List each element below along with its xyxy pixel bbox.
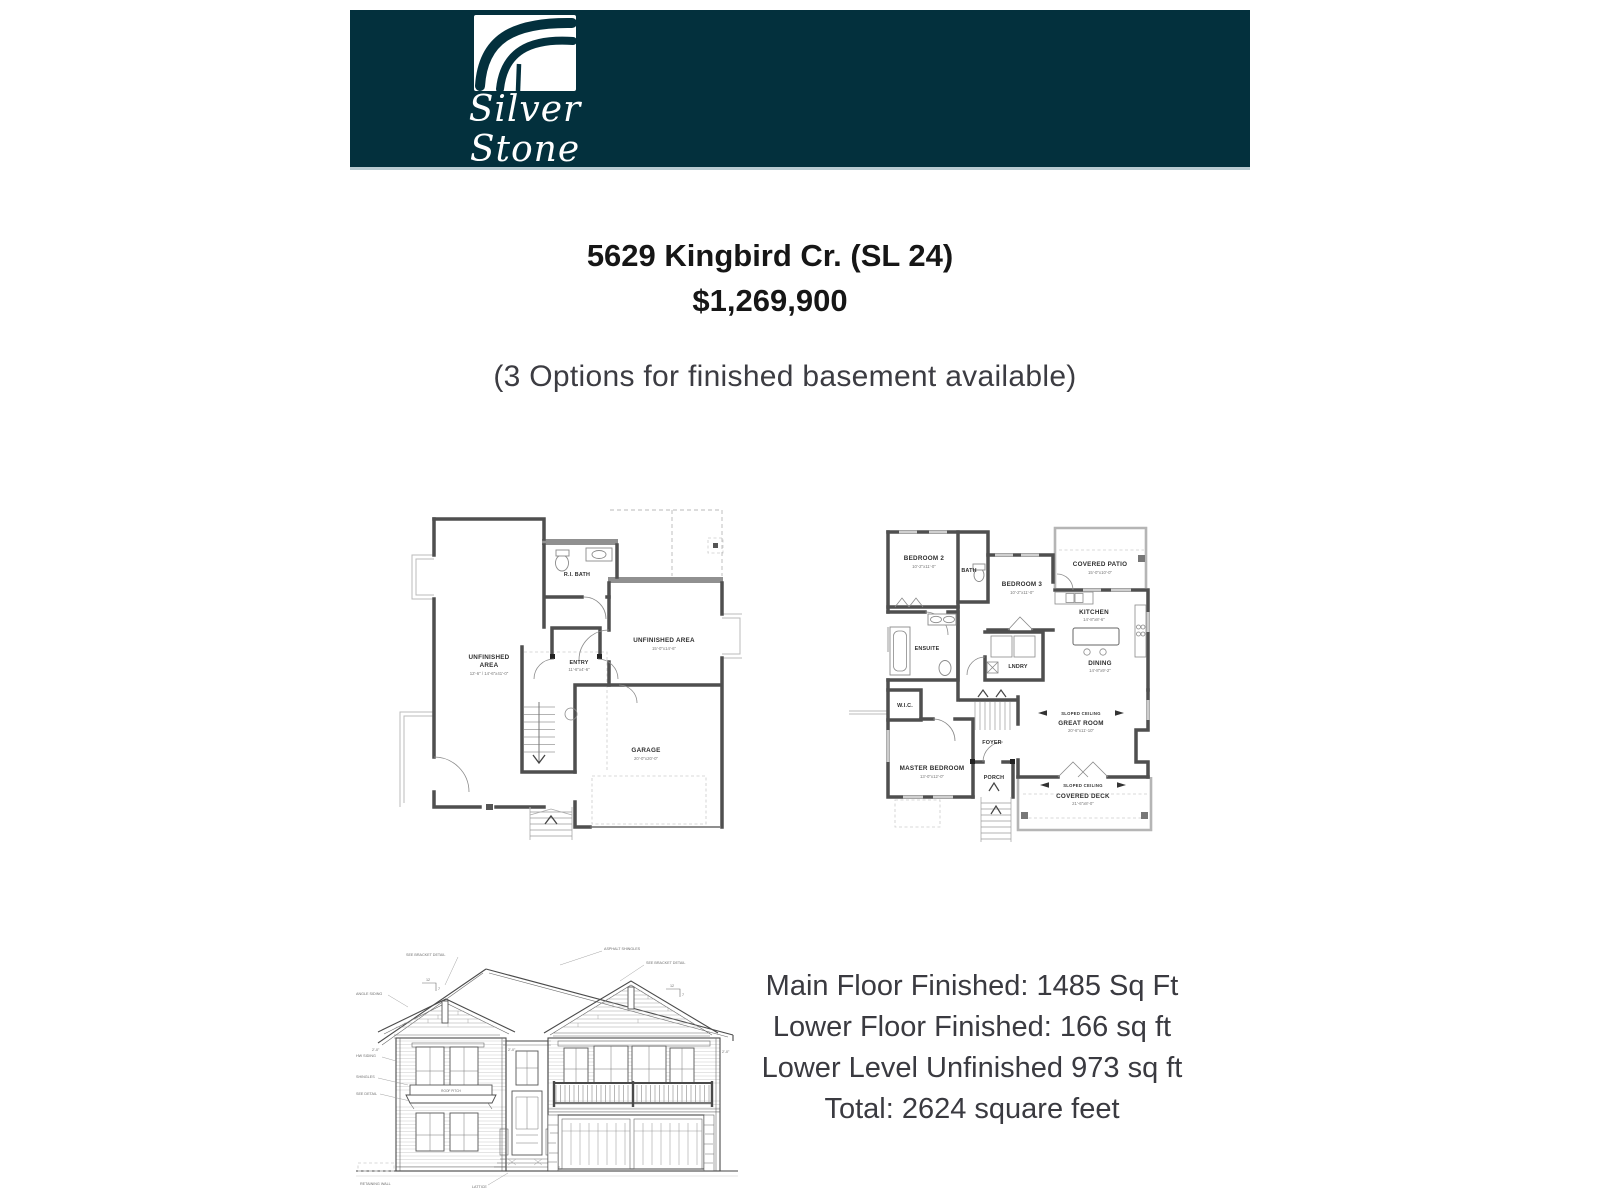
annotation-asphalt-shingles: ASPHALT SHINGLES <box>604 947 641 951</box>
room-dim-great-room: 20'-6"x11'-10" <box>1068 728 1095 733</box>
annotation-see-bracket-left: SEE BRACKET DETAIL <box>406 953 445 957</box>
annotation-overhang-right: 2'-0" <box>722 1050 730 1054</box>
room-label-covered-deck: COVERED DECK <box>1056 793 1110 800</box>
lower-floor-plan: UNFINISHED AREA 12'-6" / 14'-6"x41'-0" R… <box>372 462 742 840</box>
pitch-rise-right: 7 <box>682 993 684 997</box>
room-label-bedroom2: BEDROOM 2 <box>904 555 945 562</box>
square-footage-summary: Main Floor Finished: 1485 Sq Ft Lower Fl… <box>742 966 1202 1130</box>
room-dim-covered-patio: 15'-0"x10'-0" <box>1088 570 1113 575</box>
pitch-run-left: 12 <box>426 978 430 982</box>
listing-title-block: 5629 Kingbird Cr. (SL 24) $1,269,900 <box>270 234 1270 324</box>
annotation-shingles: SHINGLES <box>356 1075 375 1079</box>
basement-options-note: (3 Options for finished basement availab… <box>285 360 1285 394</box>
listing-price: $1,269,900 <box>270 278 1270 324</box>
room-label-porch: PORCH <box>984 775 1004 781</box>
pitch-run-right: 12 <box>670 984 674 988</box>
room-label-dining: DINING <box>1088 660 1112 667</box>
room-label-ensuite: ENSUITE <box>915 646 940 652</box>
pitch-rise-left: 7 <box>438 987 440 991</box>
room-label-wic: W.I.C. <box>897 703 913 709</box>
label-sloped-ceiling-great-room: SLOPED CEILING <box>1061 711 1101 716</box>
room-label-bath: BATH <box>961 568 976 574</box>
stone-arch-logo-icon <box>473 14 577 92</box>
summary-total: Total: 2624 square feet <box>742 1089 1202 1130</box>
room-label-unfinished-area-1: UNFINISHED <box>469 654 510 661</box>
room-dim-kitchen: 14'-8"x8'-6" <box>1083 617 1105 622</box>
room-dim-bedroom2: 10'-2"x11'-0" <box>912 564 936 569</box>
room-label-bedroom3: BEDROOM 3 <box>1002 581 1043 588</box>
room-dim-bedroom3: 10'-2"x11'-0" <box>1010 590 1034 595</box>
room-label-unfinished-right: UNFINISHED AREA <box>633 637 695 644</box>
room-dim-unfinished-area: 12'-6" / 14'-6"x41'-0" <box>470 671 509 676</box>
feature-sheet-page: Silver Stone HEIGHTS 5629 Kingbird Cr. (… <box>0 0 1600 1200</box>
annotation-overhang-left: 2'-0" <box>372 1048 380 1052</box>
annotation-roof-pitch: ROOF PITCH <box>441 1089 461 1093</box>
room-dim-garage: 20'-0"x20'-0" <box>634 756 659 761</box>
room-dim-covered-deck: 21'-6"x8'-0" <box>1072 801 1094 806</box>
brand-banner: Silver Stone HEIGHTS <box>350 10 1250 170</box>
annotation-lattice: LATTICE <box>472 1185 487 1189</box>
room-dim-unfinished-right: 15'-0"x14'-6" <box>652 646 677 651</box>
room-label-covered-patio: COVERED PATIO <box>1073 561 1127 568</box>
annotation-overhang-mid: 2'-0" <box>508 1048 516 1052</box>
brand-logo: Silver Stone HEIGHTS <box>420 14 630 189</box>
room-label-great-room: GREAT ROOM <box>1058 720 1103 727</box>
room-label-kitchen: KITCHEN <box>1079 609 1109 616</box>
annotation-angle-siding: ANGLE SIDING <box>356 992 382 996</box>
summary-lower-floor-finished: Lower Floor Finished: 166 sq ft <box>742 1007 1202 1048</box>
room-label-ri-bath: R.I. BATH <box>564 572 590 578</box>
annotation-hw-siding: HW SIDING <box>356 1054 376 1058</box>
annotation-retaining-wall: RETAINING WALL <box>360 1182 391 1186</box>
room-label-entry: ENTRY <box>569 660 588 666</box>
brand-name-script: Silver Stone <box>420 90 630 170</box>
room-label-master-bedroom: MASTER BEDROOM <box>900 765 965 772</box>
room-label-garage: GARAGE <box>631 747 660 754</box>
brand-name-sub: HEIGHTS <box>420 173 630 189</box>
front-elevation-drawing: ROOF PITCH <box>348 933 745 1198</box>
summary-main-floor: Main Floor Finished: 1485 Sq Ft <box>742 966 1202 1007</box>
room-dim-entry: 11'-6"x4'-6" <box>568 667 590 672</box>
room-dim-dining: 14'-8"x9'-2" <box>1089 668 1111 673</box>
main-floor-plan: BEDROOM 2 10'-2"x11'-0" BATH BEDROOM 3 1… <box>833 462 1205 844</box>
room-dim-master-bedroom: 13'-0"x12'-0" <box>920 774 945 779</box>
room-label-unfinished-area-2: AREA <box>480 662 499 669</box>
annotation-see-detail: SEE DETAIL <box>356 1092 377 1096</box>
listing-address: 5629 Kingbird Cr. (SL 24) <box>270 234 1270 278</box>
summary-lower-level-unfinished: Lower Level Unfinished 973 sq ft <box>742 1048 1202 1089</box>
room-label-lndry: LNDRY <box>1008 664 1028 670</box>
label-sloped-ceiling-deck: SLOPED CEILING <box>1063 783 1103 788</box>
annotation-see-bracket-right: SEE BRACKET DETAIL <box>646 961 685 965</box>
room-label-foyer: FOYER <box>982 740 1002 746</box>
